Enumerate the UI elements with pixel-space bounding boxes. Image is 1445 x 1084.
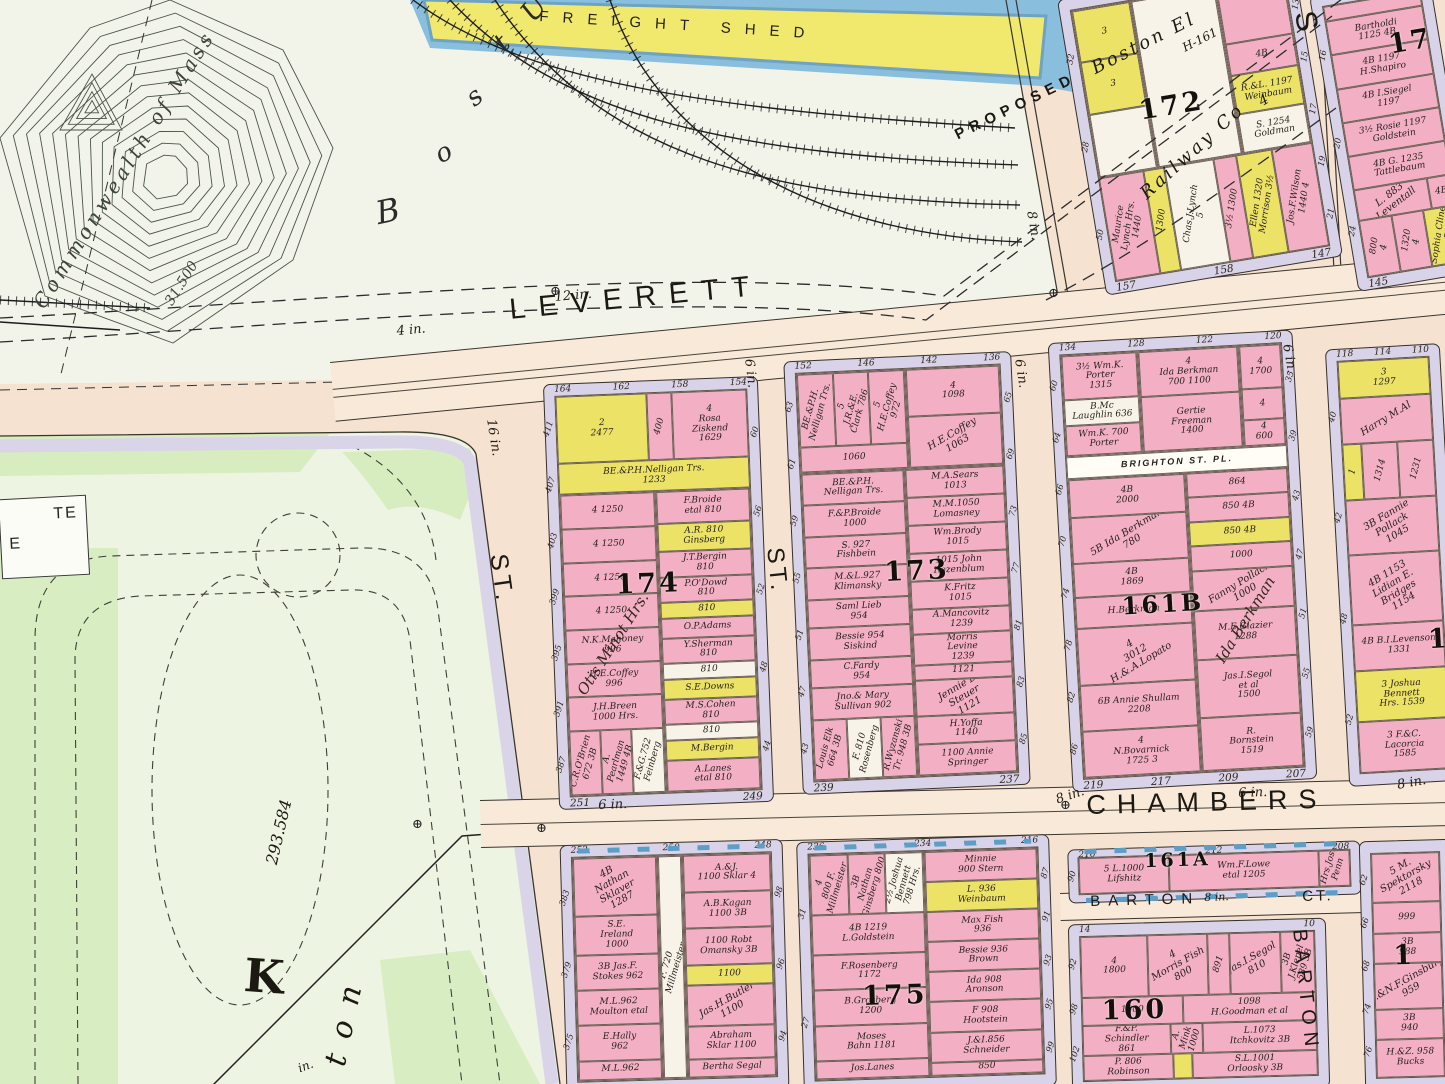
lot: BE.&P.H.Nelligan Trs. [797,373,836,448]
lot: 3½ Wm.K.Porter1315B.McLaughlin 636Wm.K. … [1060,351,1143,457]
lot: Minnie900 Stern [924,848,1037,882]
lot: Wm.Brody1015 [908,521,1007,553]
lot-text: 4B [1434,186,1445,198]
lot: BE.&P.H.Nelligan Trs. [801,470,905,506]
lot-text: 3½ Wm.K.Porter1315 [1076,361,1125,393]
lot-text: 1060 [843,452,866,463]
lot-text: 1100 AnnieSpringer [941,747,994,769]
lot: Harry M.Al [1340,394,1433,445]
lot: R.WyzanskiTr. 948 3B [881,716,918,778]
lot: 3B Jas.F.Stokes 962 [576,954,660,991]
lot-text: F.&G.752Feinberg [633,737,663,783]
lot-text: M.L.962Moulton etal [589,997,648,1018]
block-number: 161A [1144,848,1211,872]
lot-text: 3½ Rosie 1197Goldstein [1359,117,1429,147]
lot: 2½ JoshuaBennett798 Hrs. [885,852,924,914]
lot: BE.&P.H.Nelligan Trs.F.&P.Broide1000S. 9… [800,469,918,782]
lot-text: 810 [698,604,716,614]
lot: 891 [1207,933,1230,994]
lot: 4B2000 [1068,473,1186,518]
lot: C.Fardy954 [810,656,914,689]
lot-text: 3B940 [1401,1014,1419,1034]
lot: 4B20005B Ida Berkman7804B1869H.Berkman43… [1067,472,1202,779]
lot-text: R.Bornstein1519 [1229,726,1275,758]
lot-text: 1100 RobtOmansky 3B [700,936,758,957]
lot: MosesBahn 1181 [815,1023,929,1062]
lot: 41098 [906,366,1001,417]
lot-text: 4 [1259,399,1265,409]
lot: H.E.Coffey1063 [908,412,1003,467]
lot-text: A.Mancovitz1239 [933,609,990,631]
lot: 3BJ.Klepel589 3B [1280,931,1316,993]
lot: F.Broideetal 810A.R. 810GinsbergJ.T.Berg… [655,488,762,793]
lot: P. 806Robinson [1083,1054,1173,1081]
lot: 4BNathanSklaver1287S.E.Ireland10003B Jas… [572,855,664,1081]
lot-text: 3½ 1300 [1225,188,1241,229]
lot-text: GertieFreeman1400 [1170,406,1212,437]
block-number: 173 [884,554,951,588]
lot: 22477 [555,393,648,463]
lot-text: Jno.& MarySullivan 902 [834,691,892,713]
lot: 41700 [1239,344,1283,390]
lot-text: R.&L. 1197Weinbaum [1240,76,1295,104]
lot: 3 JoshuaBennettHrs. 1539 [1355,666,1445,722]
lot-text: J.T.Bergin810 [683,552,728,573]
lot: 3B FanniePollack1045 [1345,495,1439,556]
lot-text: Hrs.Jos.Penn [1320,850,1349,887]
lot-text: M.M.1050Lomasney [932,499,980,521]
lot-text: C.R.O'Brien672 3B [569,734,602,791]
lot-text: A.B.Kagan1100 3B [704,899,752,920]
lot: A.Lanesetal 810 [666,757,761,792]
lot-text: 4B 1153Lidian E.Bridges1154 [1365,558,1426,619]
lot-text: Y.Sherman810 [684,639,734,660]
lot-text: 3B FanniePollack1045 [1362,499,1422,553]
lot-text: 1000 [1230,551,1253,562]
lot-text: 4B1869 [1120,567,1144,588]
block-number: 175 [862,979,928,1012]
lot: 41098H.E.Coffey1063 [905,365,1004,469]
lot: F.&P.Schindler861 [1082,1023,1171,1056]
lot-text: 4B2000 [1115,485,1139,506]
lot-text: MosesBahn 1181 [847,1032,897,1053]
lot: Minnie900 SternL. 936WeinbaumMax Fish936… [923,847,1045,1076]
lot-text: Wm.Brody1015 [933,527,982,549]
edge-label-line2: E [0,522,87,554]
lot: 1100 AnnieSpringer [918,740,1017,775]
lot-text: BRIGHTON ST. PL. [1121,454,1234,470]
lot-text: Ida 908Aronson [965,975,1003,996]
lot-text: F.Broideetal 810 [684,496,723,517]
block-1: 5 M.Spektorsky21189993B988N.&N.F.Ginsbur… [1359,839,1445,1084]
lot: F.&G.752Feinberg [632,728,666,793]
lot-text: 3 [1101,27,1108,38]
lot: Bessie 936Brown [927,939,1040,973]
block-16: 31297Harry M.Al1131412313B FanniePollack… [1325,343,1445,787]
lot-text: M.&L.927Klimansky [833,571,881,593]
lot-text: F. 720Millmeister [658,939,686,995]
lot-text: Jas.I.Segol810 [1229,940,1281,985]
lot: E.Hally962 [578,1024,662,1061]
lot-text: B.McLaughlin 636 [1072,400,1133,423]
lot-text: Jas.H.Butler1100 [698,983,762,1026]
lot-text: 5H.E.Coffey972 [868,380,907,435]
lot-text: H.Yoffa1140 [949,718,983,739]
block-161A: 5 L.1000LifshitzWm.F.Loweetal 1205Hrs.Jo… [1067,840,1362,903]
lot: Jas.I.Segol810 [1229,932,1281,994]
lot-text: F.&P.Broide1000 [828,508,882,530]
lot: H.Yoffa1140 [917,713,1016,745]
lot-text: R.WyzanskiTr. 948 3B [883,719,916,775]
lot-text: 4B 1219L.Goldstein [842,923,895,944]
lot: A.Pearlman1449 4B [600,729,634,794]
lot-text: 1314 [1373,458,1388,483]
lot-text: L. 936Weinbaum [957,885,1006,906]
lot: M.S.Cohen810 [664,696,758,725]
lot-text: Minnie900 Stern [958,855,1004,876]
lot: 850 [931,1059,1044,1076]
lot: S.E.Ireland1000 [575,915,659,956]
lot: A.R. 810Ginsberg [657,520,752,552]
lot-text: 2½ JoshuaBennett798 Hrs. [885,856,924,910]
lot-text: 3 JoshuaBennettHrs. 1539 [1378,679,1425,711]
lot-text: 810 [700,665,718,675]
lot-text: 1098H.Goodman et al [1211,997,1289,1018]
lot-text: A.Pearlman1449 4B [600,737,634,787]
lot-text: MorrisLevine1239 [947,632,979,663]
lot: 31297 [1338,357,1431,399]
lot-text: J.&I.856Schneider [963,1035,1010,1056]
lot: R.Bornstein1519 [1200,712,1304,771]
lot: 3BNathanGinsberg 800 [847,853,886,915]
lot-text: 850 4B [1224,526,1257,538]
lot-text: S.E.Ireland1000 [600,920,634,950]
house-numbers: 90 [1067,866,1079,886]
lot-text: 5J.R.&E.Clark 786 [833,383,872,434]
lot-text: 4Ida Berkman700 1100 [1159,356,1219,388]
lot: BE.&P.H.Nelligan Trs.5J.R.&E.Clark 7865H… [796,369,909,474]
lot-text: A.Mink1000 [1170,1023,1203,1054]
lot-text: 1231 [1409,456,1424,481]
lot: Jennie D.Steuer1121 [915,676,1014,717]
block-173: BE.&P.H.Nelligan Trs.5J.R.&E.Clark 7865H… [783,351,1030,795]
lot: 6B Annie Shullam2208 [1080,680,1198,732]
lot-text: L.1073Itchkovitz 3B [1229,1026,1290,1047]
lot: Jas.I.Segolet al1500 [1197,654,1301,717]
lot-text: 850 [978,1062,995,1072]
atlas-map: 334BR.&L. 1197WeinbaumS. 1254GoldmanMaur… [0,0,1445,1084]
lot-text: A.R. 810Ginsberg [683,526,725,547]
lot-text: 1300 [1156,208,1169,232]
lot: 4 1250 [560,493,655,530]
lot-text: 891 [1212,954,1226,973]
lot-text: 41098 [941,381,965,401]
lot: MorrisLevine1239 [913,630,1012,665]
lot: 5J.R.&E.Clark 786 [833,372,872,447]
lot: F. 810Rosenberg [847,717,884,779]
lot-text: M.A.Sears1013 [931,471,979,493]
lot: 1098H.Goodman et al [1182,992,1316,1023]
lot-text: J.H.Breen1000 Hrs. [592,702,638,723]
lot-text: Max Fish936 [961,915,1004,936]
lot-text: 3 [1110,79,1117,90]
lot: 4B 1153Lidian E.Bridges1154 [1348,551,1443,625]
lot: Jno.& MarySullivan 902 [811,684,915,720]
lot-text: K.Fritz1015 [944,583,976,604]
lot: 3½ Wm.K.Porter1315 [1061,352,1139,400]
lot-text: 43012H.&.A.Lopato [1098,622,1174,686]
lot-text: Jos.F.Wilson1440 4 [1287,169,1314,226]
lot: 4Morris Fish800 [1147,934,1209,996]
block-160: 418004Morris Fish800891Jas.I.Segol8103BJ… [1068,918,1330,1084]
lot: 400 [646,392,674,460]
lot-text: H.&Z. 958Bucks [1386,1048,1434,1069]
block-number: 1 [1393,940,1416,972]
lot: Louis Elk664 3B [813,719,850,781]
lot-text: 4 1250 [593,539,625,550]
lot: A.&J.1100 Sklar 4A.B.Kagan1100 3B1100 Ro… [681,852,777,1078]
lot: F 908Hootstein [929,999,1042,1033]
lot: Jas.H.Butler1100 [686,983,774,1026]
lot-text: Bertha Segal [702,1062,762,1073]
lot-text: 8004 [1369,236,1391,256]
lot-text: 1100 [718,969,741,979]
lot [1173,1053,1193,1078]
lot: 1100 RobtOmansky 3B [685,927,773,966]
edge-label-line1: TE [0,496,86,526]
lot: 4 1250 [562,526,657,563]
block-number: 161B [1121,587,1205,621]
lot-text: 4RosaZiskend1629 [691,404,729,444]
lot-text: M.Bergin [691,743,734,754]
lot-text: C.Fardy954 [843,662,879,683]
lot: M.L.962Moulton etal [577,989,661,1026]
block-number: 174 [615,567,682,600]
lot-text: 4N.Bovarnick1725 3 [1113,736,1171,768]
lot: Max Fish936 [926,909,1039,943]
lot: F.&P.Broide1000 [803,501,907,537]
lot-text: MauriceLynch Hrs.1440 [1112,199,1148,253]
lot-text: 6B Annie Shullam2208 [1098,694,1181,718]
block-number: 16 [1427,622,1445,655]
lot-text: A.Lanesetal 810 [694,764,732,785]
lot-text: O.P.Adams [684,621,732,633]
lot-text: S.L.1001Orloosky 3B [1227,1054,1283,1075]
lot-text: Bessie 936Brown [959,945,1009,966]
lot-text: 4B B.I.Levenson1331 [1361,634,1436,658]
lot: Bessie 954Siskind [808,624,912,660]
lot: M.A.Sears1013 [906,465,1005,497]
lot-text: F. 810Rosenberg [849,722,881,774]
lot-text: S.E.Downs [685,682,734,694]
lot-text: 864 [1228,477,1246,488]
lot-text: S. 927Fishbein [836,540,876,561]
lot-text: AbrahamSklar 1100 [706,1031,756,1052]
lot-text: 5 L.1000Lifshitz [1104,864,1145,885]
lot-text: 4B I.Siegel1197 [1362,85,1414,112]
lot-text: Louis Elk664 3B [816,727,846,773]
lot-text: S. 1254Goldman [1252,115,1296,141]
lot: GertieFreeman1400 [1141,392,1242,452]
lot: 5 M.Spektorsky2118 [1371,852,1440,903]
lot: Hrs.Jos.Penn [1318,850,1351,887]
lot-text: E.Hally962 [603,1032,637,1052]
lot: J.H.Breen1000 Hrs. [568,694,663,731]
lot-text: 4600 [1255,422,1273,442]
lot-text: 4B G. 1235Tattlebaum [1372,152,1426,180]
lot: 1231 [1397,440,1436,497]
lot-text: Bessie 954Siskind [835,631,885,653]
lot: 5H.E.Coffey972 [868,370,907,445]
lot: 4RosaZiskend1629 [671,389,749,459]
block-161B: 3½ Wm.K.Porter1315B.McLaughlin 636Wm.K. … [1048,330,1318,793]
lot-text: Wm.F.Loweetal 1205 [1217,861,1270,882]
lot-text: P. 806Robinson [1107,1057,1150,1078]
lot: 41800 [1080,935,1148,998]
lot: 4Ida Berkman700 1100GertieFreeman1400 [1138,346,1244,453]
lot-text: Saml Lieb954 [836,601,883,622]
lot: Wm.K. 700Porter [1065,422,1142,456]
lot-text: Jas.I.Segolet al1500 [1224,670,1274,702]
lot: 4BNathanSklaver1287 [573,856,658,917]
lot-text: 4BNathanSklaver1287 [588,859,643,916]
lot: M.L.962 [579,1059,663,1081]
lot-text: Jennie D.Steuer1121 [937,676,993,717]
lot-text: BE.&P.H.Nelligan Trs. [799,379,834,441]
lot-text: 13204 [1401,228,1424,254]
lot-text: Harry M.Al [1359,400,1413,439]
lot: L.1073Itchkovitz 3B [1203,1020,1318,1053]
lot-text: Sophia Cline5 [1430,205,1445,265]
lot-text: 31297 [1372,367,1396,388]
lot: 5B Ida Berkman780 [1070,512,1188,564]
lot: 3 F.&C.Lacorcia1585 [1358,717,1445,773]
lot: 3B940 [1375,1008,1444,1040]
lot: 4N.Bovarnick1725 3 [1082,725,1200,777]
lot: H.&Z. 958Bucks [1376,1038,1445,1078]
lot-text: 1 [1348,468,1359,476]
lot: 4800 F.Millmeister3BNathanGinsberg 8002½… [809,851,931,1080]
lot: Saml Lieb954 [807,596,911,629]
lot-text: H.E.Coffey1063 [926,417,984,463]
lot: 4 12504 12504 12504 1250N.K.Mahoney996H.… [559,491,666,796]
block-175: 4800 F.Millmeister3BNathanGinsberg 8002½… [796,834,1057,1084]
city-blocks: 334BR.&L. 1197WeinbaumS. 1254GoldmanMaur… [0,0,1445,1084]
lot-text: 999 [1398,912,1415,922]
lot: A.Mink1000 [1170,1023,1203,1054]
lot: A.&J.1100 Sklar 4 [683,853,771,892]
lot-text: 4Morris Fish800 [1147,936,1209,993]
lot: 3 [1081,54,1146,115]
lot: 999 [1372,901,1441,933]
lot-text: F 908Hootstein [963,1005,1008,1026]
block-bLL: 4BNathanSklaver1287S.E.Ireland10003B Jas… [560,839,790,1084]
lot: S.L.1001Orloosky 3B [1192,1050,1317,1078]
lot-text: 4 1250 [592,506,624,517]
lot-text: BE.&P.H.Nelligan Trs. [823,477,883,499]
lot: C.R.O'Brien672 3B [569,730,603,795]
lot: 4 [1241,388,1284,421]
lot: 43012H.&.A.Lopato [1077,622,1196,686]
lot-text: Wm.K. 700Porter [1078,428,1129,450]
lot-text: 41700 [1249,357,1273,378]
lot: M.M.1050Lomasney [907,493,1006,525]
lot-text: BE.&P.H.Nelligan Trs.1233 [603,464,705,487]
lot-text: 1121 [952,665,975,676]
lot-text: 3BNathanGinsberg 800 [847,853,886,915]
lot: 4Ida Berkman700 1100 [1139,347,1239,398]
lot-text: 850 4B [1222,501,1255,513]
lot-text: 22477 [590,418,614,438]
lot-text: Jos.Lanes [851,1063,895,1074]
lot-text: 5B Ida Berkman780 [1089,512,1171,564]
lot-text: 3BJ.Klepel589 3B [1280,941,1316,983]
lot: 864850 4B850 4B1000Fanny Pollack1000M.E.… [1185,467,1305,773]
block-number: 160 [1101,993,1167,1026]
lot: AbrahamSklar 1100 [687,1024,775,1059]
lot-text: M.S.Cohen810 [685,700,736,721]
lot-text: 3B Jas.F.Stokes 962 [592,962,643,983]
lot-text: 41800 [1103,957,1126,977]
lot: A.B.Kagan1100 3B [684,890,772,929]
block-172: 334BR.&L. 1197WeinbaumS. 1254GoldmanMaur… [1057,0,1343,296]
lot: L. 936Weinbaum [925,879,1038,913]
lot: 1060 [800,443,908,472]
lot: Jos.Lanes [816,1058,929,1079]
lot-text: P.O'Dowd810 [684,578,728,599]
lot: 4170044600 [1238,343,1287,447]
lot-text: Chas.J.Lynch5 [1183,184,1211,245]
lot-text: F.&P.Schindler861 [1105,1025,1150,1055]
lot: 4600 [1243,418,1286,446]
lot: 3 [1072,2,1137,63]
lot: Y.Sherman810 [661,635,755,664]
lot-text: A.&J.1100 Sklar 4 [697,862,756,883]
lot-text: 810 [703,726,721,736]
lot-text: 3 F.&C.Lacorcia1585 [1384,730,1425,761]
lot: 4800 F.Millmeister [810,854,849,916]
lot-text: M.L.962 [601,1064,639,1075]
lot: Ida 908Aronson [928,969,1041,1003]
lot: F.Broideetal 810 [656,489,751,524]
lot-text: F.Rosenberg1172 [841,961,898,982]
lot: M.A.Sears1013M.M.1050LomasneyWm.Brody101… [905,464,1018,776]
block-174: 224774004RosaZiskend1629BE.&P.H.Nelligan… [543,376,774,810]
lot-text: 4800 F.Millmeister [810,856,849,915]
lot: 1100 [686,963,774,986]
lot-text: Ellen 1320Morrison 3½ [1248,173,1276,234]
lot: Bertha Segal [688,1057,776,1078]
lot: J.&I.856Schneider [930,1029,1043,1063]
lot-text: 400 [653,417,667,436]
lot-text: 5 M.Spektorsky2118 [1373,852,1438,903]
lot: 4B 1219L.Goldstein [811,912,925,955]
lot: 1314 [1361,442,1400,499]
edge-label-box: TE E [0,495,90,579]
lot-text: 4B [1255,49,1269,61]
